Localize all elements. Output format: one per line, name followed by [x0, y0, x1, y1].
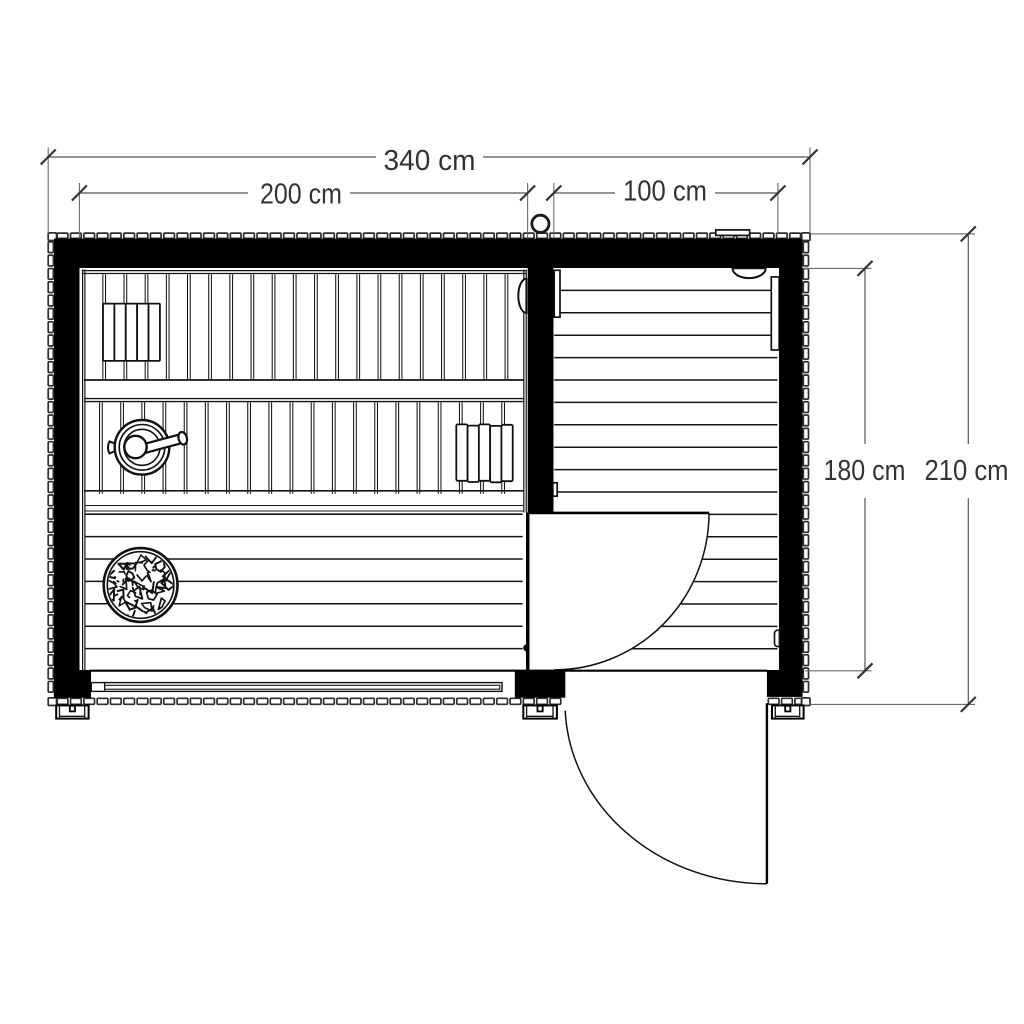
svg-text:200 cm: 200 cm [260, 178, 342, 210]
svg-text:340 cm: 340 cm [384, 145, 476, 177]
svg-text:210 cm: 210 cm [925, 455, 1009, 487]
svg-text:180 cm: 180 cm [824, 455, 906, 487]
svg-text:100 cm: 100 cm [623, 176, 707, 208]
